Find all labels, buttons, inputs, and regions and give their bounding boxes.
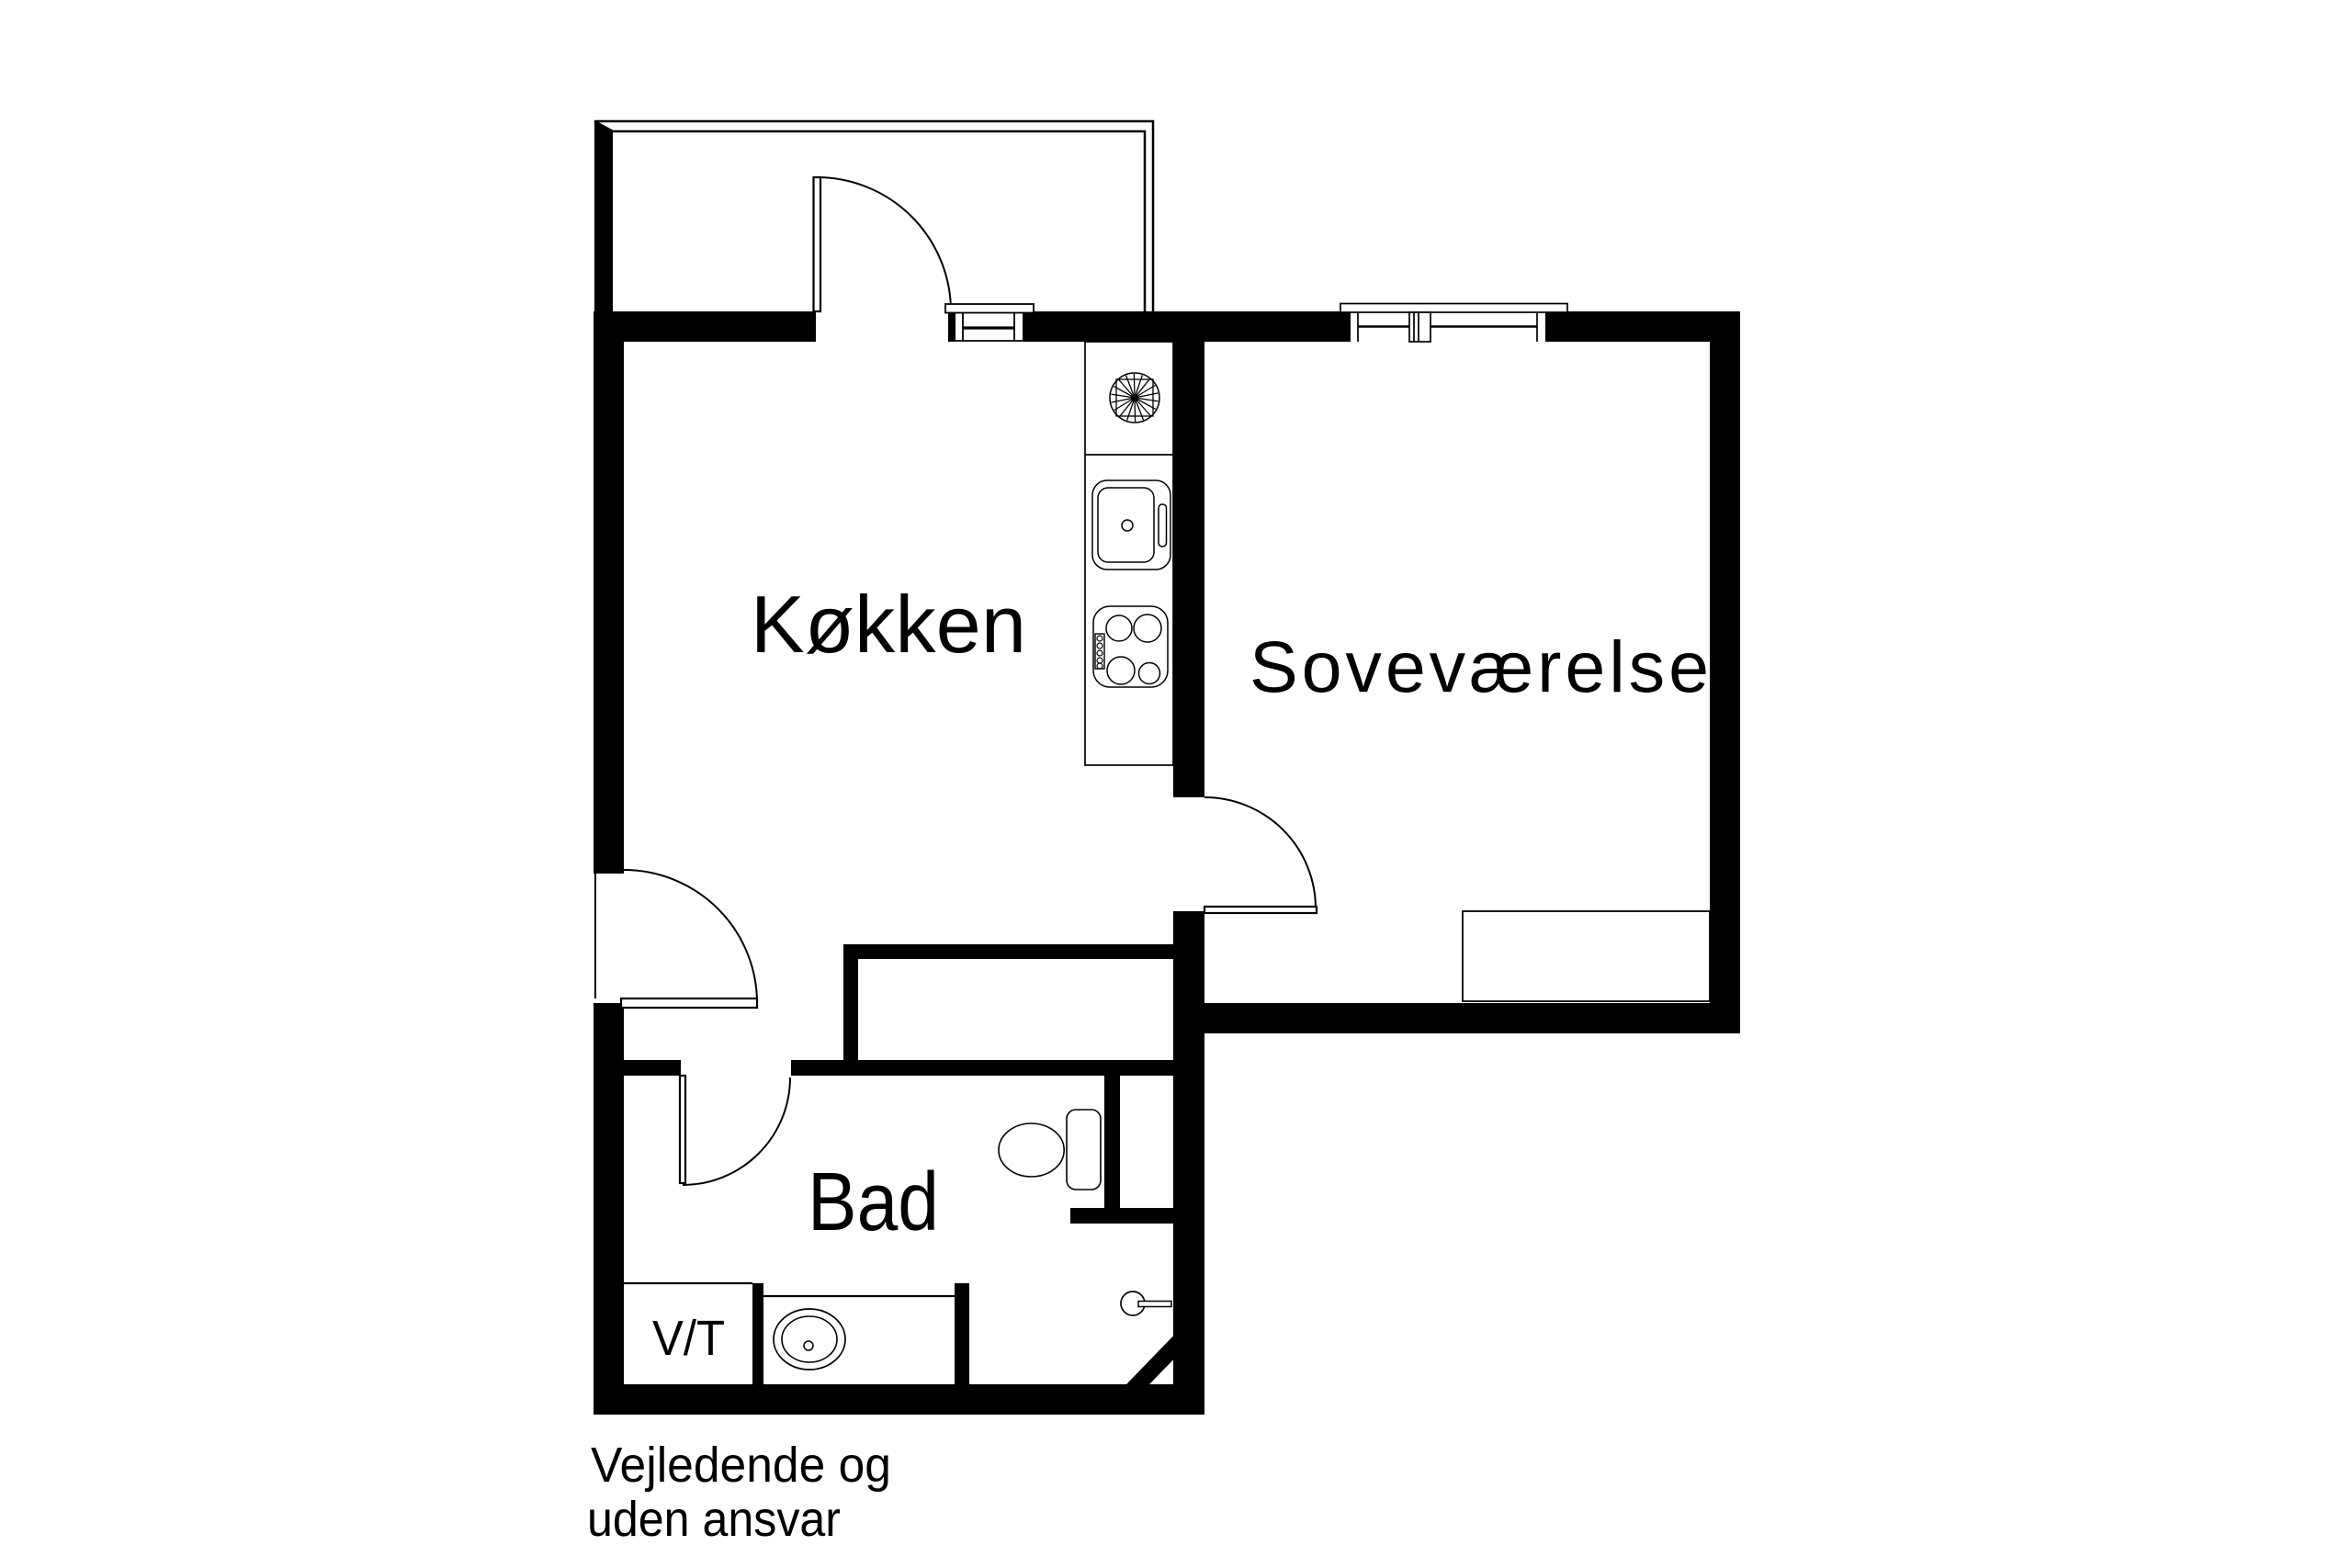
svg-text:Soveværelse: Soveværelse: [1249, 626, 1709, 707]
svg-text:Vejledende og: Vejledende og: [591, 1438, 891, 1493]
svg-text:uden ansvar: uden ansvar: [587, 1492, 841, 1547]
svg-text:Bad: Bad: [808, 1156, 939, 1248]
svg-text:V/T: V/T: [652, 1311, 725, 1366]
svg-text:Køkken: Køkken: [751, 579, 1026, 670]
